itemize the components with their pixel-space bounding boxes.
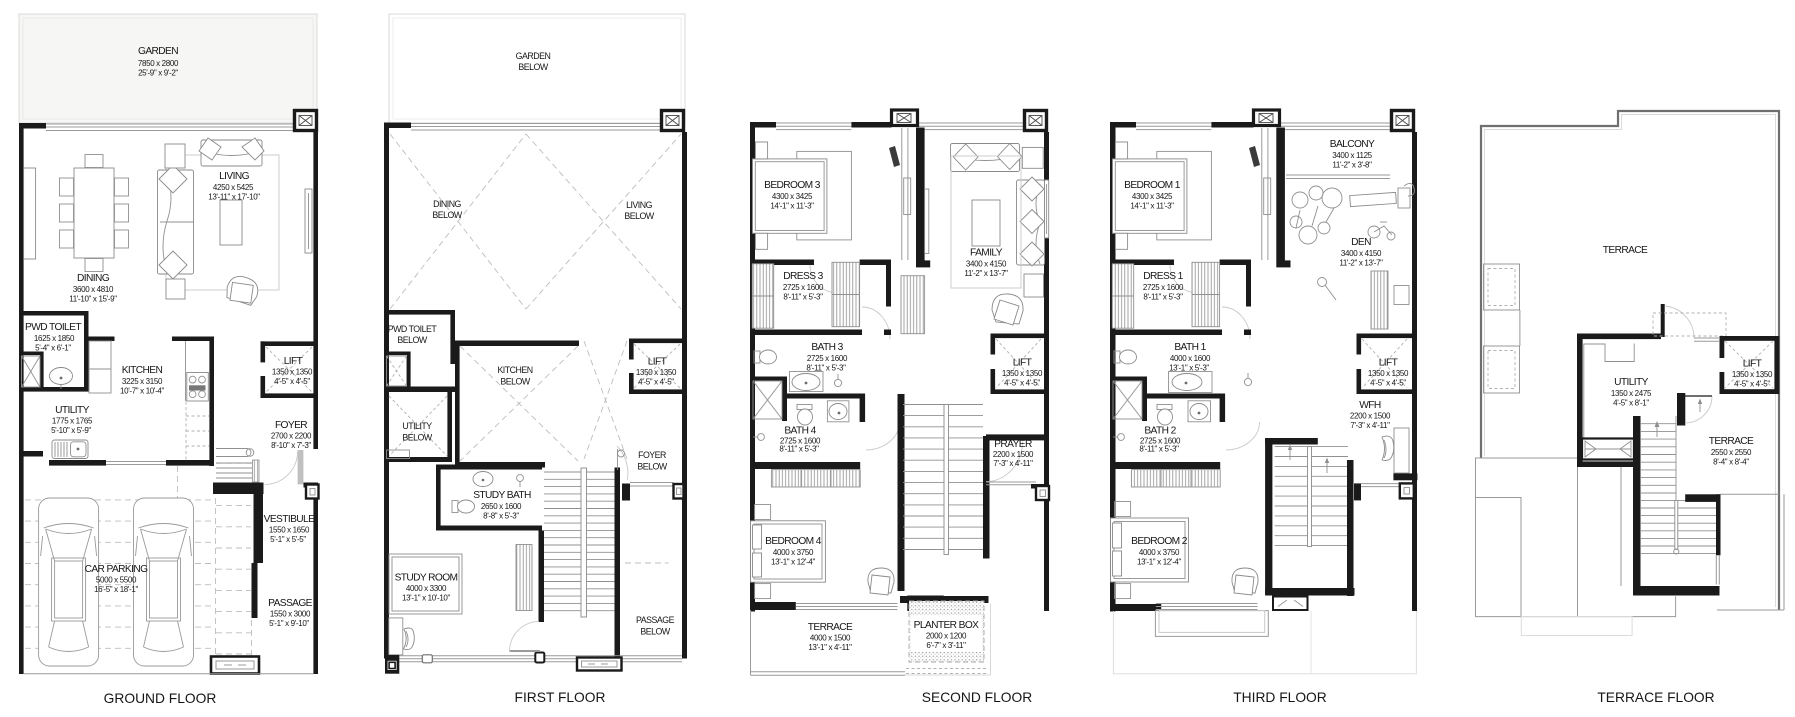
svg-text:PASSAGE: PASSAGE (268, 598, 313, 609)
svg-text:BATH 3: BATH 3 (811, 342, 843, 353)
svg-text:LIFT: LIFT (1743, 359, 1762, 370)
svg-text:3225 x 3150: 3225 x 3150 (122, 377, 163, 386)
svg-text:4000 x 3300: 4000 x 3300 (406, 584, 447, 593)
svg-text:2725 x 1600: 2725 x 1600 (1143, 283, 1184, 292)
svg-text:LIVING: LIVING (626, 200, 653, 210)
svg-text:1625 x 1850: 1625 x 1850 (34, 334, 75, 343)
svg-text:8'-11" x 5'-3": 8'-11" x 5'-3" (779, 445, 819, 454)
svg-text:BEDROOM 4: BEDROOM 4 (765, 536, 822, 547)
svg-text:4000 x 3750: 4000 x 3750 (1139, 548, 1180, 557)
svg-text:TERRACE: TERRACE (1709, 436, 1754, 447)
svg-text:5'-1" x 5'-5": 5'-1" x 5'-5" (270, 535, 306, 544)
svg-text:1550 x 3000: 1550 x 3000 (270, 610, 311, 619)
svg-text:13'-11" x 17'-10": 13'-11" x 17'-10" (208, 193, 260, 202)
svg-text:13'-1" x 5'-3": 13'-1" x 5'-3" (1169, 364, 1209, 373)
svg-text:4300 x 3425: 4300 x 3425 (772, 192, 813, 201)
svg-text:2725 x 1600: 2725 x 1600 (807, 354, 848, 363)
svg-text:3400 x 4150: 3400 x 4150 (1341, 249, 1382, 258)
svg-text:BELOW: BELOW (624, 211, 654, 221)
svg-text:DRESS 3: DRESS 3 (783, 271, 823, 282)
svg-text:4'-5" x 8'-1": 4'-5" x 8'-1" (1613, 399, 1649, 408)
svg-text:14'-1" x 11'-3": 14'-1" x 11'-3" (770, 202, 814, 211)
svg-text:16'-5" x 18'-1": 16'-5" x 18'-1" (94, 585, 138, 594)
svg-text:CAR PARKING: CAR PARKING (85, 564, 149, 575)
svg-text:BEDROOM 2: BEDROOM 2 (1131, 536, 1188, 547)
svg-text:14'-1" x 11'-3": 14'-1" x 11'-3" (1130, 202, 1174, 211)
svg-text:GARDEN: GARDEN (516, 51, 551, 61)
svg-text:8'-8" x 5'-3": 8'-8" x 5'-3" (483, 512, 519, 521)
svg-text:5'-4" x 6'-1": 5'-4" x 6'-1" (35, 344, 71, 353)
svg-text:KITCHEN: KITCHEN (497, 365, 532, 375)
svg-text:25'-9" x 9'-2": 25'-9" x 9'-2" (138, 69, 178, 78)
svg-text:BATH 4: BATH 4 (784, 426, 816, 437)
svg-text:DEN: DEN (1351, 237, 1371, 248)
svg-text:TERRACE FLOOR: TERRACE FLOOR (1597, 690, 1714, 705)
svg-text:8'-11" x 5'-3": 8'-11" x 5'-3" (1139, 445, 1179, 454)
svg-text:4'-5" x 4'-5": 4'-5" x 4'-5" (274, 377, 310, 386)
svg-text:LIFT: LIFT (1013, 358, 1032, 369)
svg-text:BELOW: BELOW (640, 627, 670, 637)
svg-text:BEDROOM 1: BEDROOM 1 (1124, 180, 1181, 191)
svg-text:PWD TOILET: PWD TOILET (388, 324, 438, 334)
svg-text:BELOW: BELOW (402, 433, 432, 443)
svg-text:4'-5" x 4'-5": 4'-5" x 4'-5" (1370, 379, 1406, 388)
svg-text:8'-11" x 5'-3": 8'-11" x 5'-3" (783, 293, 823, 302)
svg-text:GROUND FLOOR: GROUND FLOOR (104, 691, 217, 706)
svg-text:13'-1" x 12'-4": 13'-1" x 12'-4" (1137, 558, 1181, 567)
svg-text:STUDY ROOM: STUDY ROOM (395, 573, 458, 584)
svg-text:LIFT: LIFT (284, 356, 303, 367)
svg-text:8'-4" x 8'-4": 8'-4" x 8'-4" (1713, 458, 1749, 467)
svg-text:FOYER: FOYER (275, 420, 307, 431)
svg-text:4'-5" x 4'-5": 4'-5" x 4'-5" (1734, 380, 1770, 389)
svg-text:UTILITY: UTILITY (1614, 377, 1649, 388)
svg-text:BELOW: BELOW (432, 210, 462, 220)
svg-text:UTILITY: UTILITY (402, 421, 432, 431)
svg-text:2725 x 1600: 2725 x 1600 (783, 283, 824, 292)
svg-text:LIFT: LIFT (648, 357, 667, 368)
svg-text:2550 x 2550: 2550 x 2550 (1711, 448, 1752, 457)
svg-text:DINING: DINING (77, 273, 110, 284)
svg-text:4'-5" x 4'-5": 4'-5" x 4'-5" (638, 378, 674, 387)
svg-text:BEDROOM 3: BEDROOM 3 (764, 180, 821, 191)
svg-text:7850 x 2800: 7850 x 2800 (138, 59, 179, 68)
svg-text:4'-5" x 4'-5": 4'-5" x 4'-5" (1004, 379, 1040, 388)
svg-text:1350 x 1350: 1350 x 1350 (272, 368, 313, 377)
svg-text:BELOW: BELOW (397, 335, 427, 345)
svg-text:1550 x 1650: 1550 x 1650 (269, 526, 310, 535)
svg-text:STUDY BATH: STUDY BATH (473, 490, 531, 501)
svg-text:7'-3" x 4'-11": 7'-3" x 4'-11" (993, 459, 1033, 468)
svg-text:11'-2" x 13'-7": 11'-2" x 13'-7" (964, 269, 1008, 278)
svg-text:BATH 1: BATH 1 (1174, 342, 1206, 353)
svg-text:BELOW: BELOW (637, 462, 667, 472)
svg-text:4300 x 3425: 4300 x 3425 (1132, 192, 1173, 201)
svg-text:5'-1" x 9'-10": 5'-1" x 9'-10" (269, 619, 309, 628)
svg-text:11'-2" x 13'-7": 11'-2" x 13'-7" (1339, 259, 1383, 268)
svg-text:8'-10" x 7'-3": 8'-10" x 7'-3" (271, 441, 311, 450)
svg-text:3600 x 4810: 3600 x 4810 (73, 285, 114, 294)
svg-text:PLANTER BOX: PLANTER BOX (914, 620, 980, 631)
svg-text:2000 x 1200: 2000 x 1200 (926, 632, 967, 641)
svg-text:PASSAGE: PASSAGE (636, 615, 675, 625)
svg-text:FAMILY: FAMILY (970, 248, 1003, 259)
svg-text:5'-10" x 5'-9": 5'-10" x 5'-9" (51, 426, 91, 435)
svg-text:4000 x 1600: 4000 x 1600 (1170, 354, 1211, 363)
svg-text:7'-3" x 4'-11": 7'-3" x 4'-11" (1350, 421, 1390, 430)
svg-text:2200 x 1500: 2200 x 1500 (993, 450, 1034, 459)
svg-text:13'-1" x 4'-11": 13'-1" x 4'-11" (808, 643, 852, 652)
svg-text:GARDEN: GARDEN (138, 46, 178, 57)
svg-text:2700 x 2200: 2700 x 2200 (271, 432, 312, 441)
svg-text:LIFT: LIFT (1379, 358, 1398, 369)
svg-text:10'-7" x 10'-4": 10'-7" x 10'-4" (120, 387, 164, 396)
svg-text:PWD TOILET: PWD TOILET (25, 322, 81, 333)
svg-text:TERRACE: TERRACE (1603, 245, 1648, 256)
svg-text:5000 x 5500: 5000 x 5500 (96, 576, 137, 585)
svg-text:1775 x 1765: 1775 x 1765 (52, 417, 93, 426)
svg-text:3400 x 4150: 3400 x 4150 (966, 260, 1007, 269)
svg-text:3400 x 1125: 3400 x 1125 (1332, 151, 1372, 160)
svg-text:1350 x 2475: 1350 x 2475 (1611, 389, 1652, 398)
svg-text:1350 x 1350: 1350 x 1350 (1002, 369, 1043, 378)
svg-text:4000 x 3750: 4000 x 3750 (773, 548, 814, 557)
svg-text:11'-2" x 3'-8": 11'-2" x 3'-8" (1332, 161, 1372, 170)
svg-text:PRAYER: PRAYER (994, 439, 1032, 450)
svg-text:LIVING: LIVING (219, 171, 249, 182)
svg-text:FIRST FLOOR: FIRST FLOOR (515, 690, 606, 705)
svg-text:UTILITY: UTILITY (55, 405, 90, 416)
svg-text:4000 x 1500: 4000 x 1500 (810, 634, 851, 643)
svg-text:BALCONY: BALCONY (1330, 139, 1375, 150)
svg-text:2200 x 1500: 2200 x 1500 (1350, 412, 1391, 421)
svg-text:11'-10" x 15'-9": 11'-10" x 15'-9" (69, 295, 117, 304)
svg-text:VESTIBULE: VESTIBULE (264, 514, 315, 525)
svg-text:2650 x 1600: 2650 x 1600 (481, 502, 522, 511)
svg-text:1350 x 1350: 1350 x 1350 (1368, 369, 1409, 378)
svg-text:BATH 2: BATH 2 (1144, 426, 1176, 437)
svg-text:4250 x 5425: 4250 x 5425 (213, 183, 254, 192)
svg-text:8'-11" x 5'-3": 8'-11" x 5'-3" (1143, 293, 1183, 302)
svg-text:WFH: WFH (1359, 400, 1381, 411)
svg-text:BELOW: BELOW (500, 377, 530, 387)
svg-text:TERRACE: TERRACE (808, 622, 853, 633)
svg-text:1350 x 1350: 1350 x 1350 (636, 368, 677, 377)
svg-text:6'-7" x 3'-11": 6'-7" x 3'-11" (926, 641, 966, 650)
svg-text:FOYER: FOYER (638, 450, 666, 460)
svg-text:SECOND FLOOR: SECOND FLOOR (922, 690, 1032, 705)
svg-text:THIRD FLOOR: THIRD FLOOR (1233, 690, 1327, 705)
svg-text:8'-11" x 5'-3": 8'-11" x 5'-3" (806, 364, 846, 373)
svg-text:1350 x 1350: 1350 x 1350 (1732, 370, 1773, 379)
svg-text:BELOW: BELOW (518, 62, 548, 72)
svg-text:13'-1" x 12'-4": 13'-1" x 12'-4" (771, 558, 815, 567)
svg-text:13'-1" x 10'-10": 13'-1" x 10'-10" (402, 594, 451, 603)
svg-text:KITCHEN: KITCHEN (122, 365, 163, 376)
svg-text:DRESS 1: DRESS 1 (1143, 271, 1183, 282)
svg-text:DINING: DINING (433, 199, 461, 209)
